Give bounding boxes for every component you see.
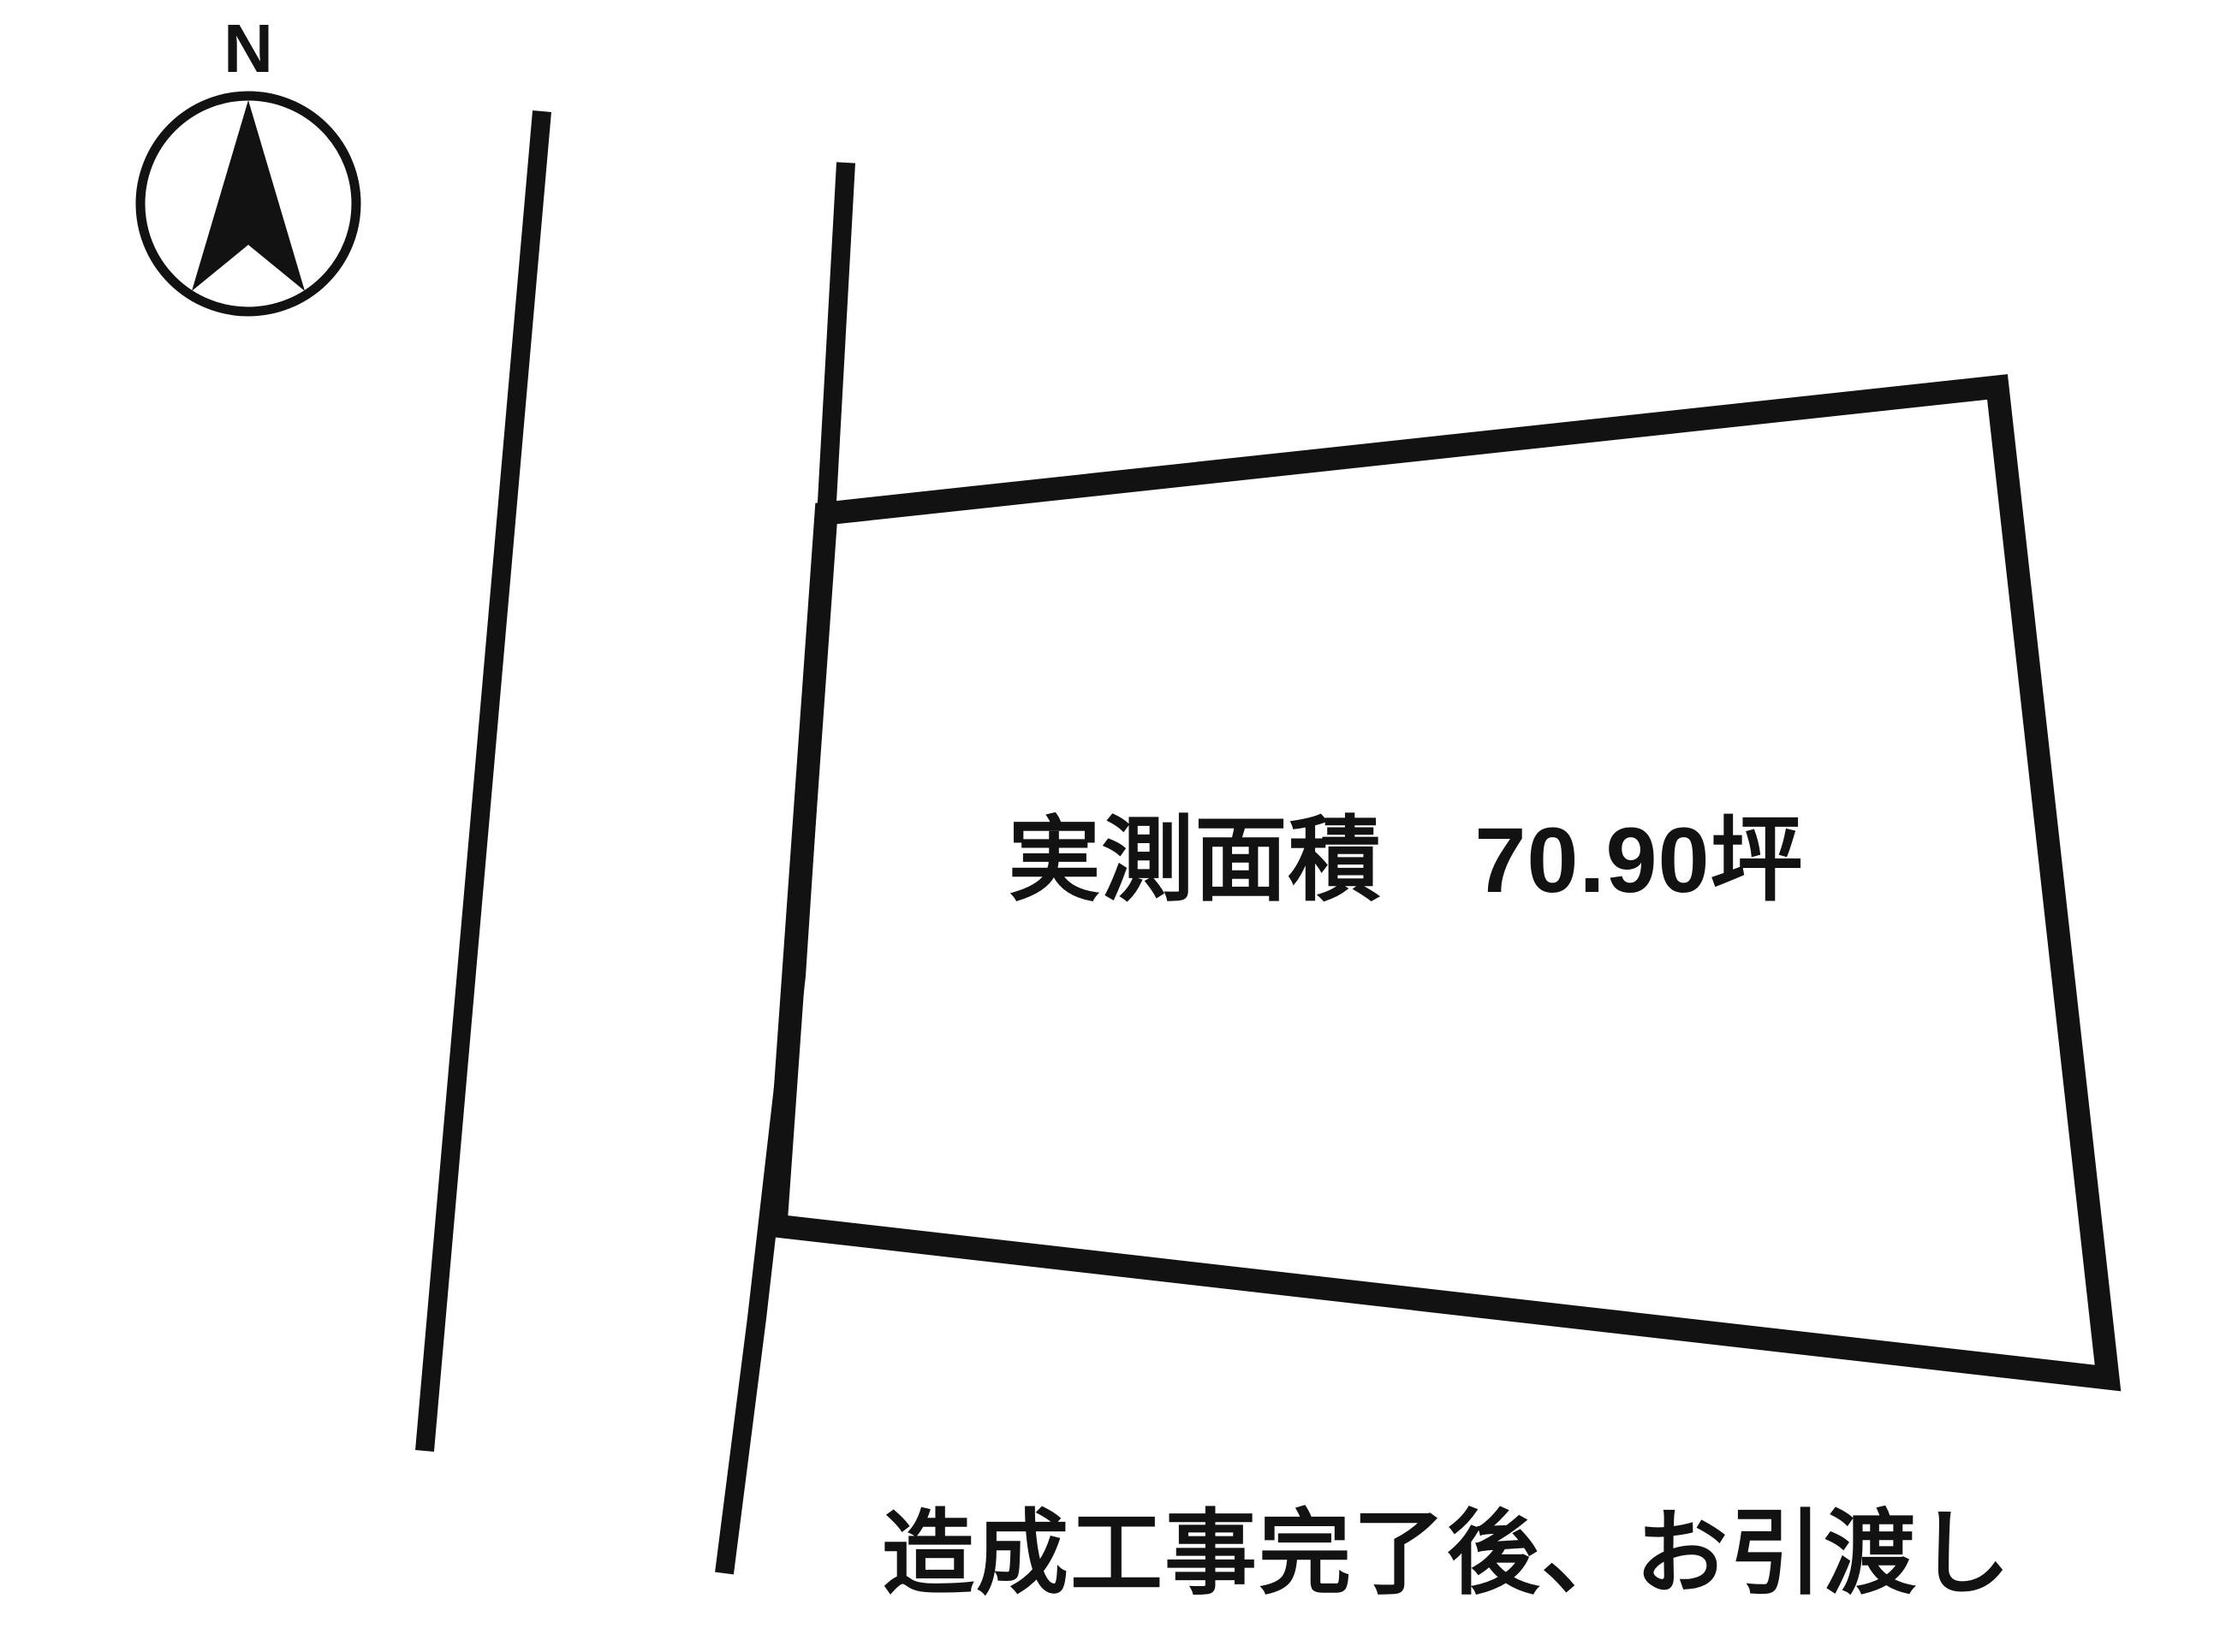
north-arrow-icon xyxy=(192,100,305,291)
left-road-line xyxy=(425,111,542,1451)
north-label: N xyxy=(223,10,273,86)
compass: N xyxy=(140,10,356,312)
handover-note: 造成工事完了後、お引渡し xyxy=(882,1501,2012,1605)
plot-map-canvas: N 実測面積 70.90坪 造成工事完了後、お引渡し xyxy=(0,0,2226,1652)
plot-map: N 実測面積 70.90坪 造成工事完了後、お引渡し xyxy=(0,0,2226,1652)
area-label: 実測面積 70.90坪 xyxy=(1008,808,1803,912)
right-road-line xyxy=(724,163,846,1573)
